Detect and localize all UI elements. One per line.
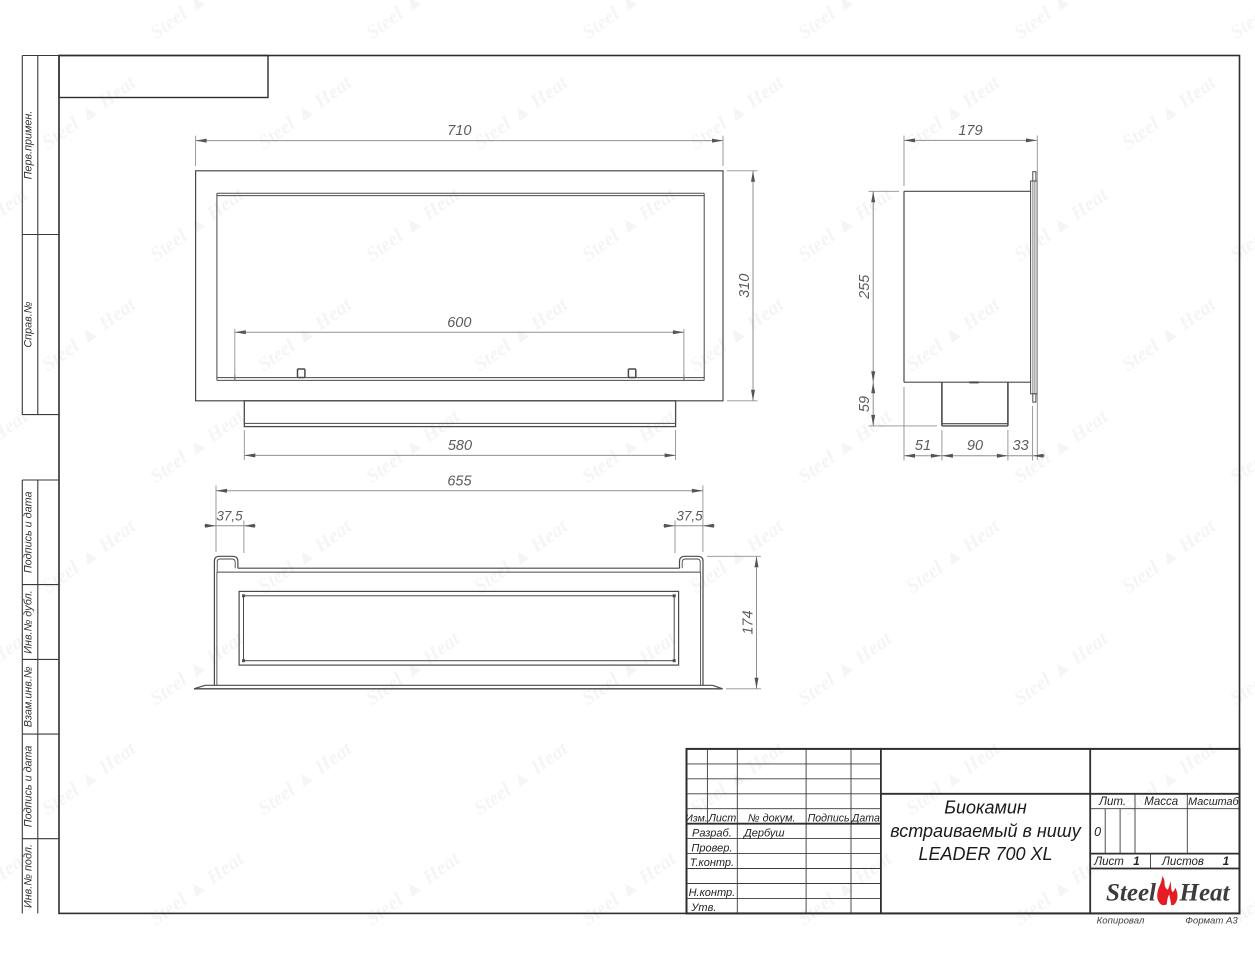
svg-text:Лист: Лист — [1093, 856, 1124, 868]
svg-text:Steel ▲ Heat: Steel ▲ Heat — [794, 627, 897, 710]
svg-text:Heat: Heat — [1179, 880, 1231, 907]
svg-text:Steel ▲ Heat: Steel ▲ Heat — [0, 405, 33, 488]
svg-text:Масса: Масса — [1144, 796, 1178, 808]
svg-text:0: 0 — [1094, 825, 1101, 839]
svg-text:310: 310 — [737, 274, 753, 298]
svg-text:33: 33 — [1013, 438, 1029, 454]
svg-text:Steel ▲ Heat: Steel ▲ Heat — [146, 405, 249, 488]
svg-text:Steel ▲ Heat: Steel ▲ Heat — [578, 0, 681, 44]
svg-text:Steel: Steel — [1106, 880, 1156, 907]
svg-text:Steel ▲ Heat: Steel ▲ Heat — [1118, 293, 1221, 376]
svg-text:Steel ▲ Heat: Steel ▲ Heat — [254, 737, 357, 820]
svg-text:Steel ▲ Heat: Steel ▲ Heat — [38, 737, 141, 820]
svg-text:Steel ▲ Heat: Steel ▲ Heat — [1010, 0, 1113, 44]
svg-text:Steel ▲ Heat: Steel ▲ Heat — [578, 627, 681, 710]
svg-text:Листов: Листов — [1161, 856, 1204, 868]
svg-text:Steel ▲ Heat: Steel ▲ Heat — [0, 0, 33, 44]
svg-text:Steel ▲ Heat: Steel ▲ Heat — [254, 515, 357, 598]
svg-text:Steel ▲ Heat: Steel ▲ Heat — [686, 71, 789, 154]
svg-text:Steel ▲ Heat: Steel ▲ Heat — [254, 293, 357, 376]
svg-text:179: 179 — [958, 123, 982, 139]
svg-text:Steel ▲ Heat: Steel ▲ Heat — [1010, 627, 1113, 710]
svg-text:№ докум.: № докум. — [748, 813, 796, 825]
svg-text:Лист: Лист — [707, 813, 736, 825]
svg-text:Steel ▲ Heat: Steel ▲ Heat — [1010, 183, 1113, 266]
svg-text:Steel ▲ Heat: Steel ▲ Heat — [902, 71, 1005, 154]
svg-text:Подпись: Подпись — [808, 813, 850, 825]
svg-text:255: 255 — [857, 274, 873, 300]
svg-text:Н.контр.: Н.контр. — [689, 887, 736, 899]
svg-text:Steel ▲ Heat: Steel ▲ Heat — [1226, 627, 1255, 710]
svg-text:Steel ▲ Heat: Steel ▲ Heat — [362, 627, 465, 710]
svg-text:Steel ▲ Heat: Steel ▲ Heat — [362, 0, 465, 44]
svg-text:LEADER 700 XL: LEADER 700 XL — [918, 844, 1052, 864]
svg-text:Steel ▲ Heat: Steel ▲ Heat — [794, 0, 897, 44]
svg-text:580: 580 — [448, 438, 472, 454]
svg-text:Steel ▲ Heat: Steel ▲ Heat — [0, 183, 33, 266]
svg-text:Steel ▲ Heat: Steel ▲ Heat — [470, 293, 573, 376]
svg-text:Steel ▲ Heat: Steel ▲ Heat — [38, 293, 141, 376]
svg-text:90: 90 — [967, 438, 983, 454]
svg-text:Утв.: Утв. — [690, 902, 716, 914]
svg-text:Steel ▲ Heat: Steel ▲ Heat — [470, 737, 573, 820]
svg-text:Steel ▲ Heat: Steel ▲ Heat — [470, 515, 573, 598]
svg-text:Справ.№: Справ.№ — [23, 301, 35, 347]
svg-text:Дербуш: Дербуш — [742, 827, 785, 839]
svg-text:Формат А3: Формат А3 — [1185, 916, 1238, 927]
svg-text:встраиваемый в нишу: встраиваемый в нишу — [890, 821, 1081, 841]
svg-text:Steel ▲ Heat: Steel ▲ Heat — [1118, 515, 1221, 598]
svg-text:Биокамин: Биокамин — [944, 798, 1027, 818]
svg-text:Провер.: Провер. — [691, 842, 732, 854]
svg-text:Лит.: Лит. — [1098, 796, 1126, 808]
svg-text:Steel ▲ Heat: Steel ▲ Heat — [578, 405, 681, 488]
svg-text:Подпись и дата: Подпись и дата — [23, 491, 35, 573]
svg-text:Дата: Дата — [851, 813, 880, 825]
svg-text:710: 710 — [447, 123, 471, 139]
svg-text:Steel ▲ Heat: Steel ▲ Heat — [38, 71, 141, 154]
svg-text:59: 59 — [857, 396, 873, 412]
svg-text:Steel ▲ Heat: Steel ▲ Heat — [794, 405, 897, 488]
svg-text:174: 174 — [741, 610, 757, 634]
svg-text:Копировал: Копировал — [1097, 916, 1145, 927]
svg-text:Подпись и дата: Подпись и дата — [23, 746, 35, 828]
svg-text:Steel ▲ Heat: Steel ▲ Heat — [794, 183, 897, 266]
svg-text:Steel ▲ Heat: Steel ▲ Heat — [902, 293, 1005, 376]
svg-text:51: 51 — [915, 438, 931, 454]
svg-text:Steel ▲ Heat: Steel ▲ Heat — [578, 847, 681, 930]
svg-text:Т.контр.: Т.контр. — [690, 857, 734, 869]
svg-text:Steel ▲ Heat: Steel ▲ Heat — [146, 627, 249, 710]
svg-text:Steel ▲ Heat: Steel ▲ Heat — [146, 0, 249, 44]
svg-text:Масштаб: Масштаб — [1188, 796, 1239, 808]
svg-text:Steel ▲ Heat: Steel ▲ Heat — [470, 71, 573, 154]
svg-text:Steel ▲ Heat: Steel ▲ Heat — [1118, 71, 1221, 154]
svg-text:Steel ▲ Heat: Steel ▲ Heat — [254, 71, 357, 154]
svg-text:655: 655 — [447, 474, 472, 490]
svg-text:600: 600 — [447, 315, 471, 331]
svg-text:Инв.№ дубл.: Инв.№ дубл. — [23, 590, 35, 653]
svg-text:37,5: 37,5 — [216, 508, 243, 523]
svg-text:Steel ▲ Heat: Steel ▲ Heat — [38, 515, 141, 598]
svg-text:Steel ▲ Heat: Steel ▲ Heat — [1226, 0, 1255, 44]
svg-text:Steel ▲ Heat: Steel ▲ Heat — [1226, 183, 1255, 266]
svg-text:37,5: 37,5 — [676, 508, 703, 523]
svg-text:1: 1 — [1223, 856, 1229, 868]
svg-text:Steel ▲ Heat: Steel ▲ Heat — [146, 847, 249, 930]
svg-text:Изм.: Изм. — [685, 814, 707, 825]
svg-text:1: 1 — [1133, 856, 1139, 868]
svg-text:Steel ▲ Heat: Steel ▲ Heat — [686, 293, 789, 376]
svg-text:Перв.примен.: Перв.примен. — [23, 111, 35, 180]
svg-text:Взам.инв.№: Взам.инв.№ — [23, 666, 35, 727]
svg-text:Инв.№ подл.: Инв.№ подл. — [23, 844, 35, 908]
svg-text:Разраб.: Разраб. — [692, 827, 732, 839]
svg-text:Steel ▲ Heat: Steel ▲ Heat — [362, 847, 465, 930]
svg-text:Steel ▲ Heat: Steel ▲ Heat — [1226, 405, 1255, 488]
svg-text:Steel ▲ Heat: Steel ▲ Heat — [902, 515, 1005, 598]
